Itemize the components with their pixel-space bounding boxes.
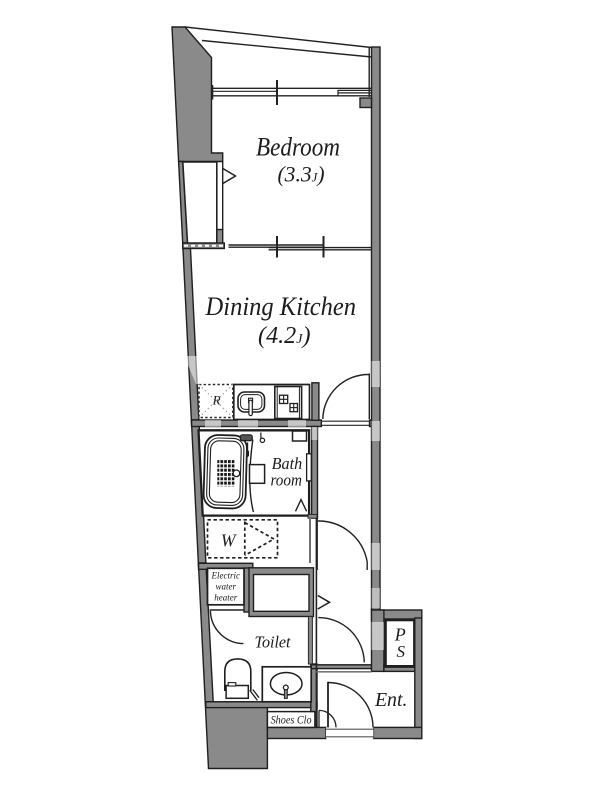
svg-text:Ent.: Ent. — [374, 689, 407, 711]
svg-text:R: R — [212, 393, 221, 408]
svg-text:Dining Kitchen: Dining Kitchen — [205, 291, 356, 321]
svg-text:room: room — [270, 471, 302, 490]
svg-text:S: S — [397, 642, 406, 661]
svg-text:Electric: Electric — [211, 571, 241, 581]
svg-text:Toilet: Toilet — [255, 633, 292, 652]
svg-text:water: water — [216, 582, 237, 592]
svg-text:(4.2J): (4.2J) — [258, 323, 311, 349]
svg-text:Shoes Clo: Shoes Clo — [271, 714, 312, 726]
svg-text:Bedroom: Bedroom — [256, 132, 340, 162]
svg-text:W: W — [221, 530, 237, 550]
svg-text:(3.3J): (3.3J) — [278, 162, 325, 187]
svg-text:heater: heater — [214, 593, 237, 603]
